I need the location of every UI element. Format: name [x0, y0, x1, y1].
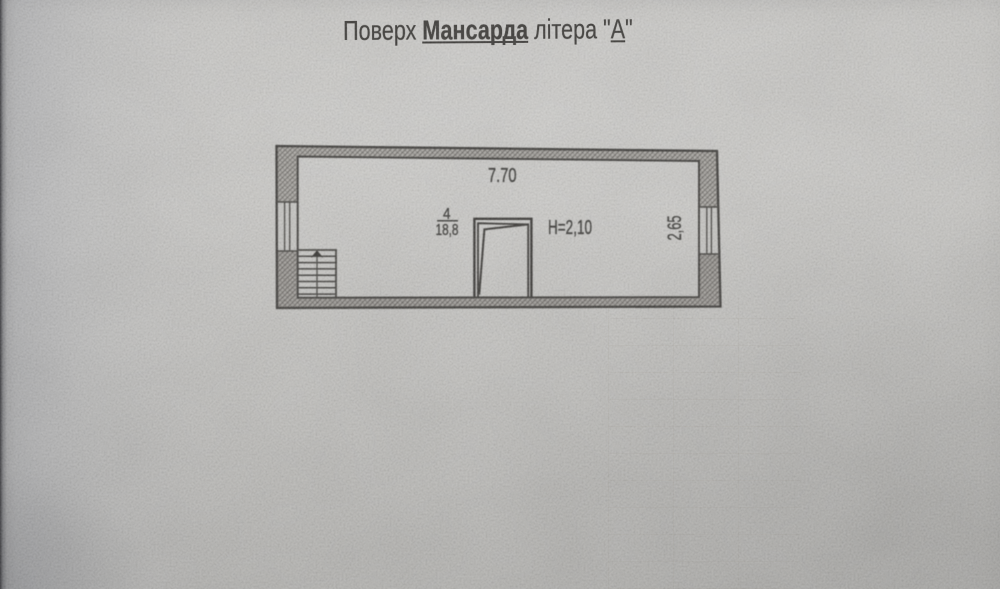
svg-text:18,8: 18,8 [436, 222, 459, 239]
svg-text:2,65: 2,65 [664, 215, 686, 240]
svg-text:7.70: 7.70 [488, 164, 517, 187]
svg-text:H=2,10: H=2,10 [548, 216, 592, 239]
